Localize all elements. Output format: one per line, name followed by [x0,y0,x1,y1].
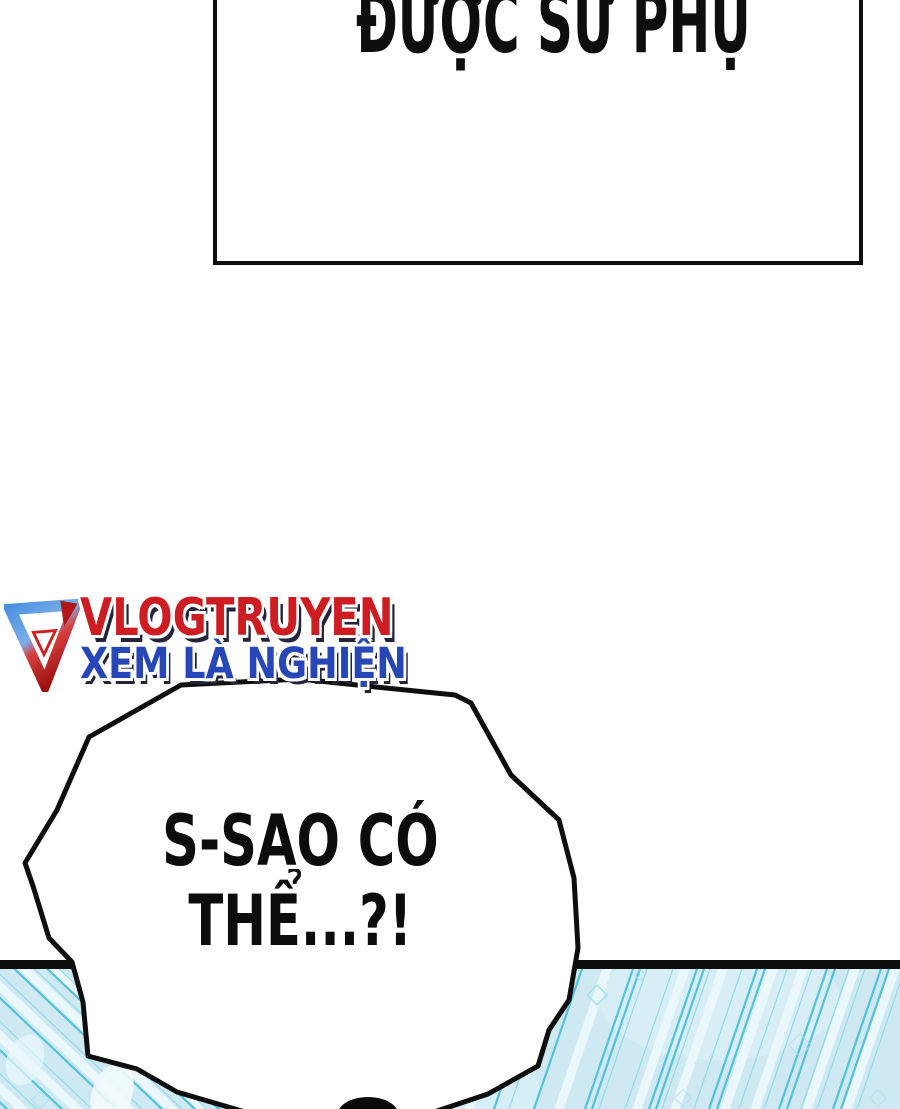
site-watermark: VLOGTRUYEN XEM LÀ NGHIỆN [0,590,420,700]
speech-bubble-text: S-SAO CÓ THỂ...?! [90,801,510,961]
vlogtruyen-triangle-logo-icon [4,596,82,692]
watermark-tagline: XEM LÀ NGHIỆN [80,643,407,686]
bottom-panel-background [0,960,900,1109]
bubble-line-1: S-SAO CÓ [162,801,439,881]
top-panel-dialogue: ĐƯỢC SƯ PHỤ [213,0,863,66]
watermark-site-name: VLOGTRUYEN [80,592,394,644]
top-panel-dialogue-text: ĐƯỢC SƯ PHỤ [356,0,751,66]
comic-page: ĐƯỢC SƯ PHỤ [0,0,900,1109]
panel-divider-line [0,960,900,969]
bubble-line-2: THỂ...?! [188,881,412,961]
